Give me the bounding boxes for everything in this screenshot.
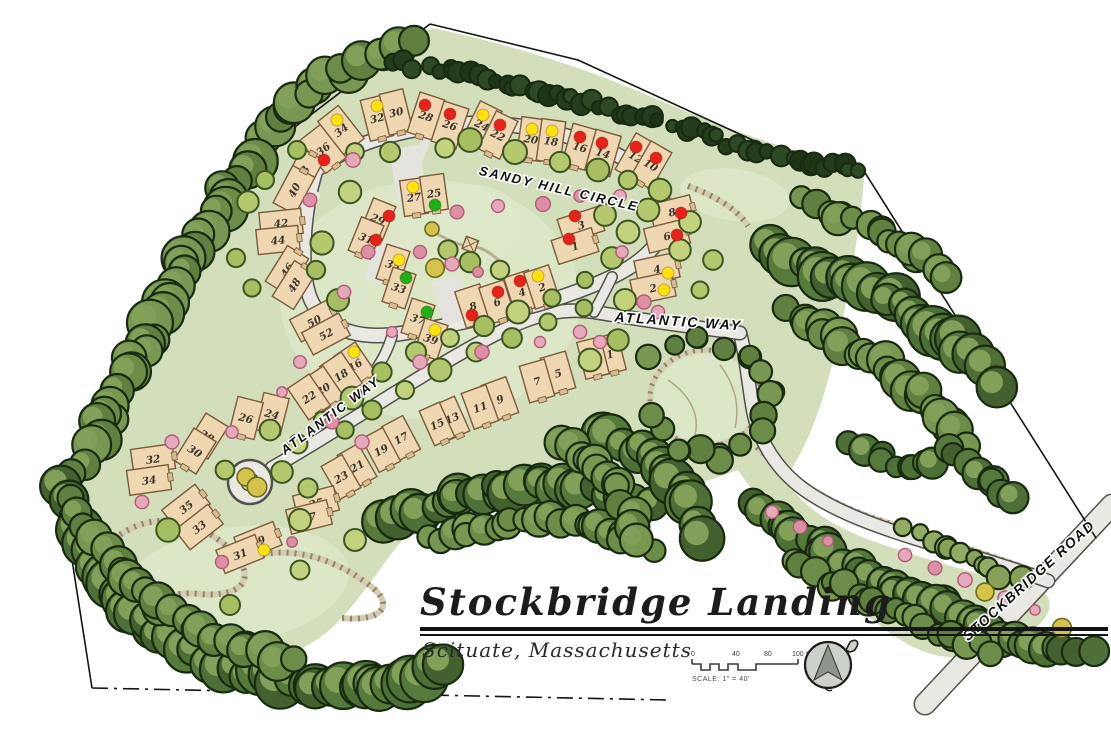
status-dot-yellow-lot-29 bbox=[258, 544, 270, 556]
status-dot-red-lot-22 bbox=[494, 119, 506, 131]
status-dot-red-lot-4 bbox=[514, 275, 526, 287]
status-dot-yellow-lot-27 bbox=[407, 181, 419, 193]
plan-subtitle: Scituate, Massachusetts bbox=[422, 638, 692, 662]
status-dot-yellow-lot-2 bbox=[658, 284, 670, 296]
status-dot-red-lot-10 bbox=[650, 152, 662, 164]
title-rule-thick bbox=[420, 627, 1108, 631]
status-dot-red-lot-12 bbox=[630, 141, 642, 153]
status-dot-yellow-lot-34 bbox=[331, 114, 343, 126]
lot-34: 34 bbox=[126, 464, 174, 495]
status-dot-yellow-lot-32 bbox=[371, 100, 383, 112]
title-rule-thin bbox=[420, 634, 1108, 636]
scale-caption: SCALE: 1" = 40' bbox=[692, 676, 750, 683]
scale-tick-0: 0 bbox=[691, 651, 695, 658]
status-dot-yellow-lot-4 bbox=[662, 267, 674, 279]
scale-tick-80: 80 bbox=[764, 651, 772, 658]
status-dot-green-lot-33 bbox=[400, 272, 412, 284]
status-dot-red-lot-6 bbox=[671, 229, 683, 241]
status-dot-red-lot-16 bbox=[574, 131, 586, 143]
status-dot-yellow-lot-16 bbox=[348, 346, 360, 358]
title-block: Stockbridge Landing Scituate, Massachuse… bbox=[420, 580, 1110, 624]
status-dot-yellow-lot-2 bbox=[532, 270, 544, 282]
status-dot-green-lot-25 bbox=[429, 199, 441, 211]
site-plan-page: 3634323028262422201816141210864231384042… bbox=[0, 0, 1111, 746]
status-dot-green-lot-37 bbox=[421, 306, 433, 318]
status-dot-red-lot-26 bbox=[444, 108, 456, 120]
status-dot-red-lot-6 bbox=[492, 286, 504, 298]
status-dot-yellow-lot-39 bbox=[429, 324, 441, 336]
status-dot-red-lot-8 bbox=[675, 207, 687, 219]
status-dot-yellow-lot-24 bbox=[477, 109, 489, 121]
status-dot-red-lot-29 bbox=[383, 210, 395, 222]
status-dot-yellow-lot-20 bbox=[526, 123, 538, 135]
status-dot-red-lot-8 bbox=[466, 309, 478, 321]
lot-number-44: 44 bbox=[270, 234, 286, 247]
status-dot-red-lot-28 bbox=[419, 99, 431, 111]
status-dot-red-lot-1 bbox=[563, 233, 575, 245]
north-arrow-icon bbox=[798, 632, 860, 694]
scale-tick-40: 40 bbox=[732, 651, 740, 658]
status-dot-red-lot-31 bbox=[370, 234, 382, 246]
status-dot-red-lot-14 bbox=[596, 137, 608, 149]
status-dot-red-lot-36 bbox=[318, 154, 330, 166]
lot-number-34: 34 bbox=[141, 474, 157, 488]
status-dot-yellow-lot-18 bbox=[546, 125, 558, 137]
status-dot-yellow-lot-35 bbox=[393, 254, 405, 266]
lot-number-32: 32 bbox=[145, 453, 161, 467]
plan-title: Stockbridge Landing bbox=[420, 580, 1110, 624]
status-dot-red-lot-3 bbox=[569, 210, 581, 222]
